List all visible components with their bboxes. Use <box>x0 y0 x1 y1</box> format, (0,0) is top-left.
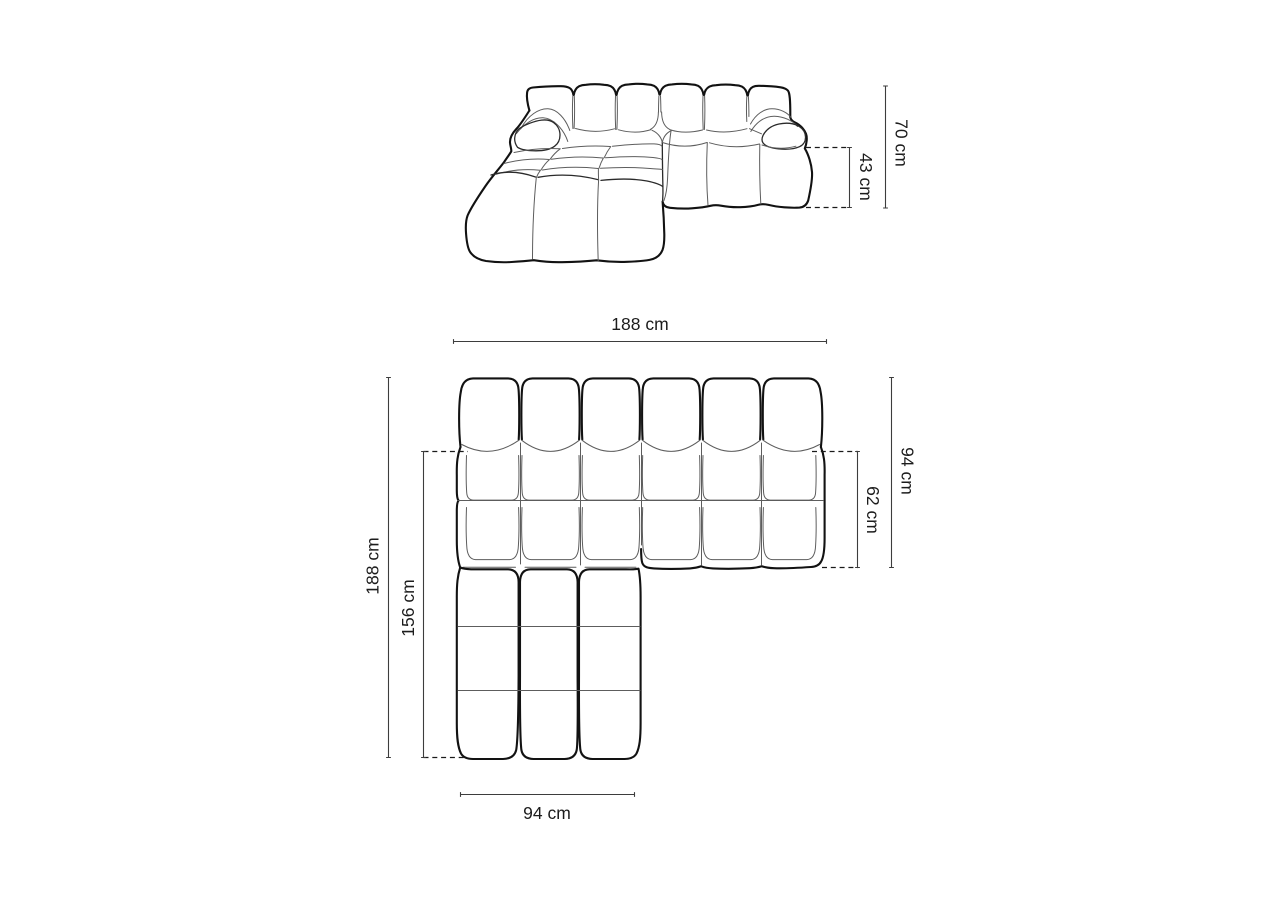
svg-text:70 cm: 70 cm <box>891 119 911 167</box>
svg-text:94 cm: 94 cm <box>897 447 917 495</box>
svg-text:188 cm: 188 cm <box>363 537 383 594</box>
svg-text:156 cm: 156 cm <box>398 579 418 636</box>
svg-text:94 cm: 94 cm <box>523 803 571 823</box>
svg-text:62 cm: 62 cm <box>863 486 883 534</box>
svg-text:43 cm: 43 cm <box>856 153 876 201</box>
svg-text:188 cm: 188 cm <box>611 314 668 334</box>
